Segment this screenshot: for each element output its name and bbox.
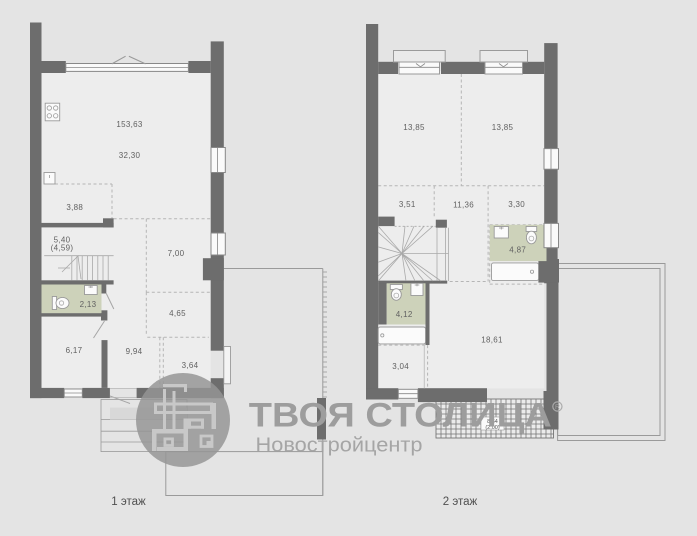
svg-text:13,85: 13,85: [492, 123, 514, 132]
svg-text:3,88: 3,88: [66, 203, 83, 212]
svg-text:3,04: 3,04: [392, 362, 409, 371]
svg-text:32,30: 32,30: [119, 151, 141, 160]
svg-text:3,51: 3,51: [399, 200, 416, 209]
svg-text:(4,59): (4,59): [51, 244, 74, 253]
svg-text:11,36: 11,36: [453, 201, 474, 210]
svg-text:2 этаж: 2 этаж: [443, 496, 478, 508]
svg-text:4,65: 4,65: [169, 309, 186, 318]
svg-text:3,30: 3,30: [508, 200, 525, 209]
svg-text:R: R: [555, 404, 560, 411]
svg-text:13,85: 13,85: [403, 123, 425, 132]
svg-text:Новостройцентр: Новостройцентр: [256, 434, 423, 456]
svg-text:7,00: 7,00: [168, 249, 185, 258]
svg-text:ТВОЯ СТОЛИЦА: ТВОЯ СТОЛИЦА: [249, 396, 552, 434]
svg-text:2,13: 2,13: [80, 300, 97, 309]
svg-text:3,64: 3,64: [182, 361, 199, 370]
svg-text:153,63: 153,63: [116, 120, 143, 129]
svg-text:4,12: 4,12: [396, 310, 413, 319]
svg-text:1 этаж: 1 этаж: [111, 496, 146, 508]
svg-text:18,61: 18,61: [481, 336, 503, 345]
svg-text:6,17: 6,17: [66, 346, 83, 355]
svg-text:9,94: 9,94: [126, 347, 143, 356]
svg-text:4,87: 4,87: [509, 246, 526, 255]
